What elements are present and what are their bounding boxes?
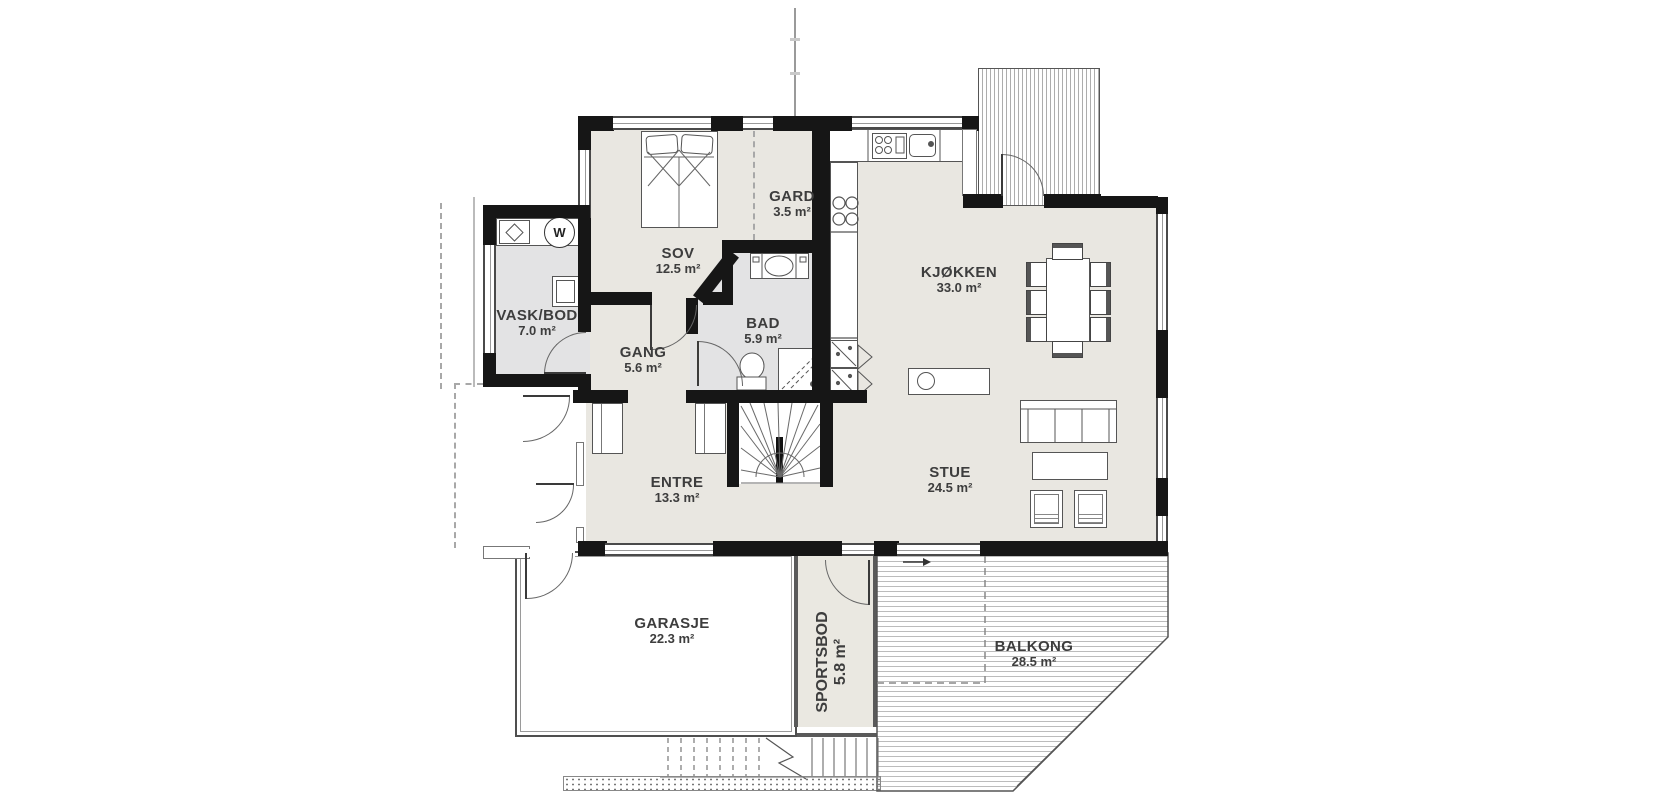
gard-open-front-dashed <box>753 131 755 240</box>
room-area: 24.5 m² <box>928 481 973 496</box>
wall-left-mid <box>578 218 591 332</box>
wall-stair-left <box>727 396 739 487</box>
room-name: ENTRE <box>651 474 704 491</box>
dining-chair-left-3 <box>1026 317 1047 342</box>
garage-corner-notch <box>483 546 530 559</box>
coffee-table <box>1032 452 1108 480</box>
dining-chair-left-2 <box>1026 290 1047 315</box>
room-area: 28.5 m² <box>995 655 1074 670</box>
room-label-garasje: GARASJE 22.3 m² <box>634 615 709 647</box>
wall-bottom-1 <box>713 541 842 556</box>
door-arc-entry-lower <box>536 485 574 523</box>
overhang-line <box>473 197 475 387</box>
room-area: 5.6 m² <box>620 361 667 376</box>
window-right-1 <box>1156 214 1168 330</box>
oven-icon <box>872 133 907 159</box>
wall-stair-right <box>820 396 833 487</box>
room-label-sportsbod: SPORTSBOD 5.8 m² <box>804 602 860 722</box>
room-area: 7.0 m² <box>496 324 577 339</box>
room-label-gang: GANG 5.6 m² <box>620 344 667 376</box>
pillow-left <box>645 134 678 155</box>
dining-chair-right-1 <box>1090 262 1111 287</box>
room-area: 3.5 m² <box>769 205 815 220</box>
door-leaf-entry-lower <box>536 483 574 485</box>
fridge-icon <box>830 340 858 368</box>
balcony-decking <box>877 553 1168 791</box>
dining-chair-bottom <box>1052 341 1083 358</box>
wardrobe-right <box>695 403 726 454</box>
pillow-right <box>680 134 713 155</box>
porch-dashed-top <box>454 383 483 385</box>
room-name: GARASJE <box>634 615 709 632</box>
wall-vask-top <box>483 205 590 218</box>
room-name: GARD <box>769 188 815 205</box>
washing-machine-icon: W <box>544 217 575 248</box>
room-label-balkong: BALKONG 28.5 m² <box>995 638 1074 670</box>
window-vask-left <box>483 245 496 353</box>
room-area: 5.9 m² <box>744 332 782 347</box>
wall-vask-left-top <box>483 205 496 245</box>
wardrobe-left <box>592 403 623 454</box>
room-label-kjokken: KJØKKEN 33.0 m² <box>921 264 997 296</box>
room-area: 33.0 m² <box>921 281 997 296</box>
floor-plan-canvas: W <box>0 0 1670 800</box>
room-name: GANG <box>620 344 667 361</box>
section-line <box>794 8 796 118</box>
wall-terrace-a <box>963 194 1003 208</box>
wall-kitchen-west <box>812 116 830 396</box>
wall-bottom-2 <box>874 541 899 556</box>
room-label-gard: GARD 3.5 m² <box>769 188 815 220</box>
glass-wall-terrace <box>962 129 977 196</box>
window-stue-bottom <box>897 543 982 556</box>
room-label-sov: SOV 12.5 m² <box>656 245 701 277</box>
wall-entre-west-a <box>576 442 584 486</box>
sportsbod-wall-bottom <box>797 733 877 737</box>
water-heater-inner <box>556 280 575 303</box>
sportsbod-wall-left <box>794 556 798 727</box>
window-sov-top-1 <box>613 116 711 130</box>
sportsbod-wall-right <box>873 556 877 727</box>
wall-gang-entre <box>573 390 628 403</box>
wall-terrace-b <box>1044 194 1101 208</box>
dining-table <box>1046 258 1090 342</box>
wall-vask-bottom <box>483 374 590 387</box>
dining-chair-right-3 <box>1090 317 1111 342</box>
island-sink-icon <box>917 372 935 390</box>
room-name: KJØKKEN <box>921 264 997 281</box>
stair-newel-post <box>776 437 783 483</box>
armchair-left <box>1030 490 1063 528</box>
gravel-strip <box>563 776 881 791</box>
door-leaf-vask <box>544 372 586 374</box>
room-label-stue: STUE 24.5 m² <box>928 464 973 496</box>
wall-right-1 <box>1156 330 1168 398</box>
sofa <box>1020 400 1117 443</box>
wall-sov-gang-a <box>591 292 652 305</box>
washer-letter: W <box>553 225 565 240</box>
room-name: VASK/BOD <box>496 307 577 324</box>
room-name: BAD <box>744 315 782 332</box>
room-area: 5.8 m² <box>832 602 850 722</box>
wall-bottom-3 <box>980 541 1168 556</box>
wall-terrace-c <box>1097 196 1158 208</box>
room-area: 22.3 m² <box>634 632 709 647</box>
section-line-tick-1 <box>790 38 800 41</box>
wall-gard-bottom <box>722 240 812 253</box>
overhang-dashed-line <box>440 203 442 389</box>
window-entre-bottom <box>605 543 715 556</box>
wall-top-mid <box>711 116 743 131</box>
balcony-door-sill <box>842 543 876 556</box>
room-name: SPORTSBOD <box>814 602 832 722</box>
dining-chair-top <box>1052 243 1083 260</box>
section-line-tick-2 <box>790 72 800 75</box>
kitchen-sink <box>909 134 936 157</box>
door-leaf-garage <box>525 553 527 599</box>
window-right-2 <box>1156 398 1168 478</box>
room-area: 13.3 m² <box>651 491 704 506</box>
wall-corner-bottom-left <box>578 541 607 556</box>
wall-right-2 <box>1156 478 1168 516</box>
armchair-right <box>1074 490 1107 528</box>
door-arc-entry-upper <box>523 397 570 442</box>
room-label-entre: ENTRE 13.3 m² <box>651 474 704 506</box>
door-leaf-entry-upper <box>523 395 570 397</box>
dining-chair-right-2 <box>1090 290 1111 315</box>
window-right-3 <box>1156 516 1168 543</box>
door-leaf-sportsbod <box>868 560 870 605</box>
porch-dashed-edge <box>454 383 456 548</box>
wall-bad-bottom <box>686 390 867 403</box>
dining-chair-left-1 <box>1026 262 1047 287</box>
window-sov-top-2 <box>743 116 773 130</box>
exterior-stair <box>660 738 881 779</box>
room-label-bad: BAD 5.9 m² <box>744 315 782 347</box>
room-area: 12.5 m² <box>656 262 701 277</box>
room-name: SOV <box>656 245 701 262</box>
wall-left-top <box>578 116 591 152</box>
door-leaf-bad <box>697 341 699 386</box>
bathroom-vanity <box>750 253 809 279</box>
door-leaf-terrace <box>1001 154 1003 196</box>
room-name: BALKONG <box>995 638 1074 655</box>
window-kitchen-top <box>852 116 964 129</box>
room-label-vask-bod: VASK/BOD 7.0 m² <box>496 307 577 339</box>
room-name: STUE <box>928 464 973 481</box>
wall-corner-top-right <box>1156 197 1168 215</box>
